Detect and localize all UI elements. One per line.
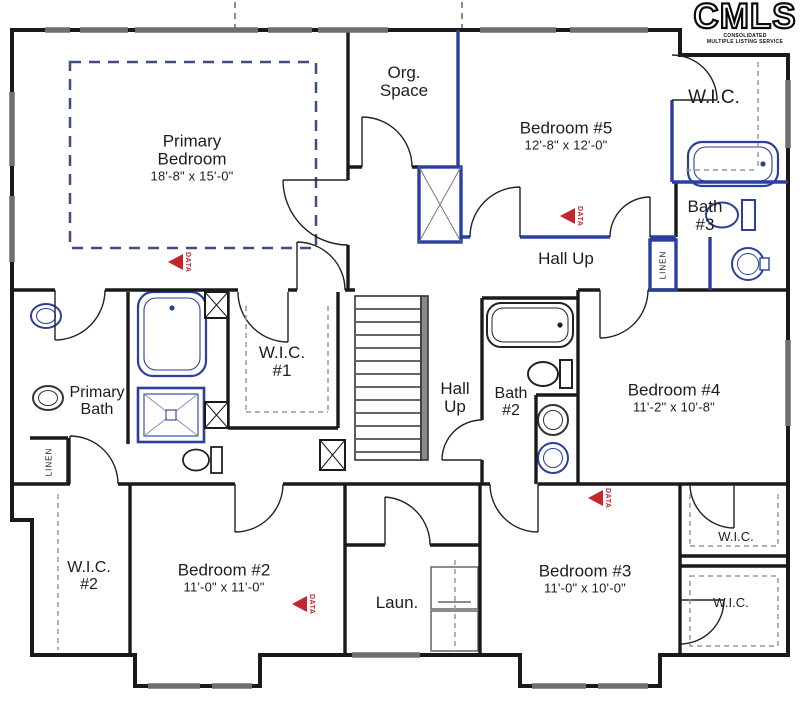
data-marker-hall: DATA <box>560 206 583 226</box>
label-wic-mid-right: W.I.C. <box>718 530 753 544</box>
floorplan-page: Primary Bedroom 18'-8" x 15'-0" Org. Spa… <box>0 0 800 705</box>
shower-icon <box>138 388 204 442</box>
sink3-icon <box>732 248 769 280</box>
cmls-logo-text: CMLS <box>692 0 798 33</box>
triangle-left-icon <box>560 208 575 224</box>
primary-bathtub-icon <box>138 292 206 376</box>
triangle-left-icon <box>168 254 183 270</box>
cmls-logo: CMLS CONSOLIDATED MULTIPLE LISTING SERVI… <box>692 0 798 45</box>
label-linen-right: LINEN <box>659 251 668 280</box>
label-wic-bottom-right: W.I.C. <box>713 596 748 610</box>
triangle-left-icon <box>588 490 603 506</box>
label-wic-top-right: W.I.C. <box>688 88 740 108</box>
primary-sink1-icon <box>31 304 61 328</box>
data-marker-primary: DATA <box>168 252 191 272</box>
cmls-logo-subtitle2: MULTIPLE LISTING SERVICE <box>692 39 798 45</box>
staircase-icon <box>355 296 428 460</box>
toilet2-icon <box>528 360 572 388</box>
bath2-sink2-icon <box>538 443 568 473</box>
bath2-sink1-icon <box>538 405 568 435</box>
bathtub3-icon <box>688 142 778 186</box>
triangle-left-icon <box>292 596 307 612</box>
label-wic-1: W.I.C. #1 <box>253 344 311 380</box>
bathtub2-icon <box>487 303 573 347</box>
label-bedroom-5: Bedroom #5 12'-8" x 12'-0" <box>520 120 613 153</box>
primary-toilet-icon <box>183 447 222 473</box>
label-hall-up-right: Hall Up <box>538 250 594 268</box>
chase-x <box>419 167 461 242</box>
data-marker-bedroom3: DATA <box>588 488 611 508</box>
label-hall-up-center: Hall Up <box>432 380 478 416</box>
label-bedroom-2: Bedroom #2 11'-0" x 11'-0" <box>178 562 271 595</box>
label-bedroom-3: Bedroom #3 11'-0" x 10'-0" <box>539 563 632 596</box>
label-org-space: Org. Space <box>379 64 429 100</box>
label-linen-left: LINEN <box>45 448 54 477</box>
label-bath-3: Bath #3 <box>682 198 728 234</box>
label-bedroom-4: Bedroom #4 11'-2" x 10'-8" <box>628 382 721 415</box>
label-primary-bedroom: Primary Bedroom 18'-8" x 15'-0" <box>146 133 238 184</box>
data-marker-bedroom2: DATA <box>292 594 315 614</box>
label-laundry: Laun. <box>376 594 419 612</box>
label-primary-bath: Primary Bath <box>59 385 135 419</box>
label-wic-2: W.I.C. #2 <box>60 560 118 594</box>
label-bath-2: Bath #2 <box>488 386 534 420</box>
x-boxes <box>205 292 345 470</box>
